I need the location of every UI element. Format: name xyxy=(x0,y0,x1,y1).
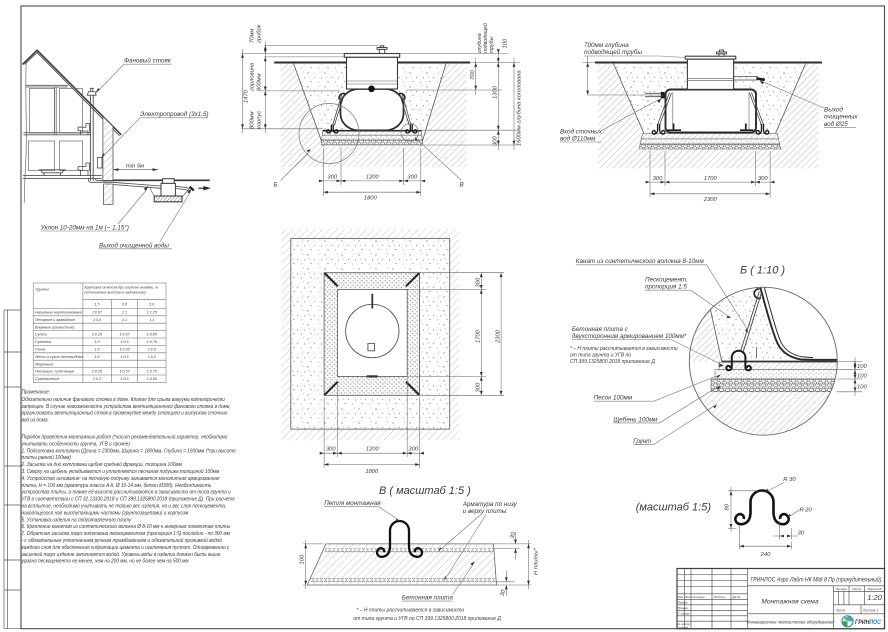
svg-text:Пескоцемент,: Пескоцемент, xyxy=(645,277,688,284)
svg-text:Выход очищенной воды: Выход очищенной воды xyxy=(99,241,169,249)
svg-text:Утверд.: Утверд. xyxy=(678,625,690,629)
svg-text:устройства плиты, а также её в: устройства плиты, а также её высота расс… xyxy=(21,488,231,495)
svg-text:подводящей: подводящей xyxy=(482,23,489,53)
svg-text:1600мм глубина котлована: 1600мм глубина котлована xyxy=(517,70,523,146)
svg-text:300: 300 xyxy=(476,277,482,287)
svg-text:1700: 1700 xyxy=(476,329,482,343)
svg-text:Масштаб: Масштаб xyxy=(867,587,881,591)
svg-text:100: 100 xyxy=(503,38,509,48)
svg-text:(масштаб 1:5): (масштаб 1:5) xyxy=(636,502,712,514)
svg-text:1300: 1300 xyxy=(493,85,499,99)
svg-text:Канат из синтетического волокн: Канат из синтетического волокна 8-10мм xyxy=(576,258,705,265)
svg-text:1. Подготовка котлована (Длина: 1. Подготовка котлована (Длина = 2300мм,… xyxy=(22,448,236,454)
svg-text:двухсторонним армированием 100: двухсторонним армированием 100мм* xyxy=(572,332,687,340)
svg-text:2. Засыпка на дно котлована ще: 2. Засыпка на дно котлована щебня средне… xyxy=(21,461,183,468)
svg-text:Литера: Литера xyxy=(835,587,848,591)
svg-text:от типа грунта и УГВ по: от типа грунта и УГВ по xyxy=(570,353,631,359)
svg-text:300: 300 xyxy=(476,382,482,392)
svg-text:300: 300 xyxy=(408,447,418,453)
svg-text:Лист: Лист xyxy=(684,595,693,599)
svg-text:Бетонная плита с: Бетонная плита с xyxy=(572,326,629,333)
svg-text:* – Н плиты рассчитывается в з: * – Н плиты рассчитывается в зависимости xyxy=(356,608,464,614)
svg-text:Провер.: Провер. xyxy=(678,606,689,610)
svg-text:УГВ в соответствии с СП 32.133: УГВ в соответствии с СП 32.13330.2018 и … xyxy=(22,496,236,502)
svg-text:100: 100 xyxy=(857,385,867,391)
svg-text:Глина: Глина xyxy=(35,348,45,352)
svg-text:1700: 1700 xyxy=(704,176,718,182)
svg-text:(отношение высоты к заложению): (отношение высоты к заложению) xyxy=(85,291,147,295)
svg-text:Песчаные, супесчаные: Песчаные, супесчаные xyxy=(35,370,74,374)
svg-text:Крутизна откосов при глубине в: Крутизна откосов при глубине выемки, м xyxy=(85,286,159,290)
svg-text:Уклон 10-20мм на 1м (~ 1.15°): Уклон 10-20мм на 1м (~ 1.15°) xyxy=(40,224,129,232)
svg-text:300: 300 xyxy=(407,175,417,181)
svg-text:Масса: Масса xyxy=(852,587,861,591)
svg-text:2300: 2300 xyxy=(495,329,501,344)
svg-text:учитывать особенности грунта,: учитывать особенности грунта, УГВ и проч… xyxy=(21,441,131,447)
svg-text:Грунты: Грунты xyxy=(36,288,50,292)
svg-text:R 30: R 30 xyxy=(783,477,796,483)
svg-text:находящегося над выступающими: находящегося над выступающими частями (г… xyxy=(22,510,190,516)
svg-text:Лессы и сухие лессовидные: Лессы и сухие лессовидные xyxy=(34,355,83,359)
svg-text:каждого слоя для обеспечения г: каждого слоя для обеспечения гидратации … xyxy=(22,545,230,551)
svg-text:Фановый стояк: Фановый стояк xyxy=(124,57,172,65)
svg-text:от типа грунта и УГВ по СП 399: от типа грунта и УГВ по СП 399.1325800.2… xyxy=(353,616,501,622)
svg-text:100: 100 xyxy=(857,374,867,380)
svg-text:Б: Б xyxy=(274,182,278,189)
svg-text:1:0.25: 1:0.25 xyxy=(92,370,103,374)
svg-text:Суглинок: Суглинок xyxy=(35,340,51,344)
svg-text:70мм: 70мм xyxy=(250,29,256,43)
svg-text:Насыпные неуплотненные: Насыпные неуплотненные xyxy=(35,311,82,315)
svg-text:1:0.75: 1:0.75 xyxy=(147,340,158,344)
svg-text:600мм: 600мм xyxy=(257,73,263,91)
svg-text:Электропровод (3х1.5): Электропровод (3х1.5) xyxy=(140,110,209,118)
svg-text:1:0.25: 1:0.25 xyxy=(119,348,130,352)
svg-text:организовать вентиляционный ст: организовать вентиляционный стояк в пром… xyxy=(22,409,228,416)
svg-text:Суглинистые: Суглинистые xyxy=(35,377,59,381)
svg-text:30: 30 xyxy=(798,531,805,537)
svg-text:1:0.5: 1:0.5 xyxy=(148,355,157,359)
svg-text:2300: 2300 xyxy=(703,197,718,203)
svg-text:на всплытие, необходимо учитыв: на всплытие, необходимо учитывать не тол… xyxy=(22,503,227,509)
svg-text:Песок 100мм: Песок 100мм xyxy=(594,395,633,402)
svg-text:5. Установка изделия на подгот: 5. Установка изделия на подготовленную п… xyxy=(22,517,132,523)
svg-text:Лист: Лист xyxy=(835,609,845,613)
svg-text:700: 700 xyxy=(470,70,476,80)
svg-text:700мм глубина: 700мм глубина xyxy=(584,41,629,49)
svg-text:Влажные (глинистые):: Влажные (глинистые): xyxy=(35,325,75,329)
svg-text:Листов 1: Листов 1 xyxy=(862,609,878,613)
svg-text:300: 300 xyxy=(653,176,663,182)
svg-text:1:0.5: 1:0.5 xyxy=(93,318,102,322)
svg-text:Изм: Изм xyxy=(678,595,683,599)
svg-text:засыпкой пазух изделие заполня: засыпкой пазух изделие заполняется водой… xyxy=(21,551,221,558)
svg-text:1200: 1200 xyxy=(366,447,380,453)
svg-text:ГРИНЛОС: ГРИНЛОС xyxy=(855,619,881,626)
svg-text:1:1: 1:1 xyxy=(122,311,127,315)
svg-text:корпус: корпус xyxy=(257,111,263,129)
svg-text:Н плиты*: Н плиты* xyxy=(534,547,540,575)
svg-text:Монтажная схема: Монтажная схема xyxy=(761,599,819,606)
svg-text:240: 240 xyxy=(760,552,771,558)
svg-text:300: 300 xyxy=(326,447,336,453)
svg-text:1:0.5: 1:0.5 xyxy=(120,340,129,344)
svg-text:запрещен. В случае невозможнос: запрещен. В случае невозможности устройс… xyxy=(21,403,231,410)
svg-text:1:1: 1:1 xyxy=(122,318,127,322)
svg-text:1800: 1800 xyxy=(365,469,379,475)
svg-text:Б ( 1:10 ): Б ( 1:10 ) xyxy=(740,265,785,277)
svg-text:1:0.67: 1:0.67 xyxy=(92,311,103,315)
svg-text:Выход: Выход xyxy=(824,106,843,114)
svg-text:1470: 1470 xyxy=(244,89,250,103)
svg-text:Грунт: Грунт xyxy=(633,438,651,445)
svg-text:плиты равной 100мм): плиты равной 100мм) xyxy=(22,454,72,461)
svg-text:1:0.5: 1:0.5 xyxy=(120,377,129,381)
svg-text:80: 80 xyxy=(725,503,731,510)
svg-text:1:0.5: 1:0.5 xyxy=(148,348,157,352)
svg-text:вод Ø110мм: вод Ø110мм xyxy=(560,135,596,143)
svg-text:вод из дома.: вод из дома. xyxy=(22,417,49,423)
svg-text:100: 100 xyxy=(300,554,306,564)
svg-text:пропорция 1:5: пропорция 1:5 xyxy=(645,284,687,291)
svg-text:1800: 1800 xyxy=(364,195,378,201)
svg-text:Бетонная плита: Бетонная плита xyxy=(402,595,453,602)
svg-text:1:0.85: 1:0.85 xyxy=(147,333,158,337)
svg-text:1:0.5: 1:0.5 xyxy=(120,355,129,359)
svg-text:В ( масштаб 1:5 ): В ( масштаб 1:5 ) xyxy=(379,485,471,497)
svg-text:4. Устройство основания: на пе: 4. Устройство основания: на песчаную под… xyxy=(22,475,220,482)
svg-text:R 20: R 20 xyxy=(800,508,813,514)
svg-text:1:0.75: 1:0.75 xyxy=(147,370,158,374)
svg-text:1:1.25: 1:1.25 xyxy=(147,311,158,315)
svg-text:уровня пескоцемента не менее,: уровня пескоцемента не менее, чем на 200… xyxy=(21,559,190,565)
svg-text:Моренные:: Моренные: xyxy=(35,362,54,366)
svg-text:Разраб.: Разраб. xyxy=(678,600,689,604)
svg-text:300: 300 xyxy=(327,175,337,181)
svg-text:1:0.67: 1:0.67 xyxy=(119,333,130,337)
svg-text:СП 399.1325800.2018 приложение: СП 399.1325800.2018 приложение Д xyxy=(570,359,655,365)
svg-text:Дата: Дата xyxy=(732,595,741,599)
svg-text:min 5м: min 5м xyxy=(126,164,144,170)
svg-text:и верху плиты: и верху плиты xyxy=(463,508,507,515)
svg-text:подводящей трубы: подводящей трубы xyxy=(584,48,642,56)
svg-text:1:0.25: 1:0.25 xyxy=(92,333,103,337)
svg-text:300: 300 xyxy=(758,176,768,182)
svg-text:1:20: 1:20 xyxy=(867,593,882,602)
svg-text:очищенных: очищенных xyxy=(824,114,858,121)
svg-text:вод Ø25: вод Ø25 xyxy=(824,120,848,128)
svg-text:ГРИНЛОС Аэро Лайт НК Midi 8 Пр: ГРИНЛОС Аэро Лайт НК Midi 8 Пр (принудит… xyxy=(751,577,882,584)
svg-text:"Инновационное экологическое о: "Инновационное экологическое оборудовани… xyxy=(745,620,835,625)
svg-text:1200: 1200 xyxy=(366,175,380,181)
svg-text:Примечание:: Примечание: xyxy=(22,389,51,395)
svg-text:Петля монтажная: Петля монтажная xyxy=(324,500,381,507)
svg-text:В: В xyxy=(460,182,464,189)
svg-text:Песчаные и гравийные: Песчаные и гравийные xyxy=(35,318,75,322)
svg-text:Щебень 100мм: Щебень 100мм xyxy=(613,415,658,423)
svg-text:1:1: 1:1 xyxy=(149,318,154,322)
svg-text:горловина: горловина xyxy=(250,62,256,91)
svg-text:Подпись: Подпись xyxy=(714,595,726,599)
svg-text:* – Н плиты рассчитывается в з: * – Н плиты рассчитывается в зависимости xyxy=(570,346,678,352)
svg-text:7. Обратная засыпка пазух котл: 7. Обратная засыпка пазух котлована песк… xyxy=(22,530,231,537)
svg-text:Супесь: Супесь xyxy=(35,333,47,337)
svg-text:300: 300 xyxy=(492,136,498,146)
svg-text:1:0.65: 1:0.65 xyxy=(147,377,158,381)
svg-text:100: 100 xyxy=(857,364,867,370)
svg-text:800мм: 800мм xyxy=(250,111,256,129)
svg-text:6. Крепление канатом из синтет: 6. Крепление канатом из синтетического в… xyxy=(22,524,231,530)
svg-text:трубы: трубы xyxy=(489,36,495,53)
svg-text:плита, Н = 100 мм (арматура кл: плита, Н = 100 мм (арматура класса А-II,… xyxy=(22,483,212,489)
svg-text:№ докум.: № докум. xyxy=(693,595,706,599)
svg-text:Арматура по низу: Арматура по низу xyxy=(462,501,518,508)
svg-text:грибок: грибок xyxy=(257,24,263,43)
svg-text:1:0.57: 1:0.57 xyxy=(119,370,130,374)
svg-text:Вход сточных: Вход сточных xyxy=(560,127,603,135)
svg-text:1:0.2: 1:0.2 xyxy=(93,377,101,381)
svg-text:Т. контр.: Т. контр. xyxy=(678,611,691,615)
svg-text:Обязательно наличие фанового с: Обязательно наличие фанового стояка в до… xyxy=(22,397,225,403)
